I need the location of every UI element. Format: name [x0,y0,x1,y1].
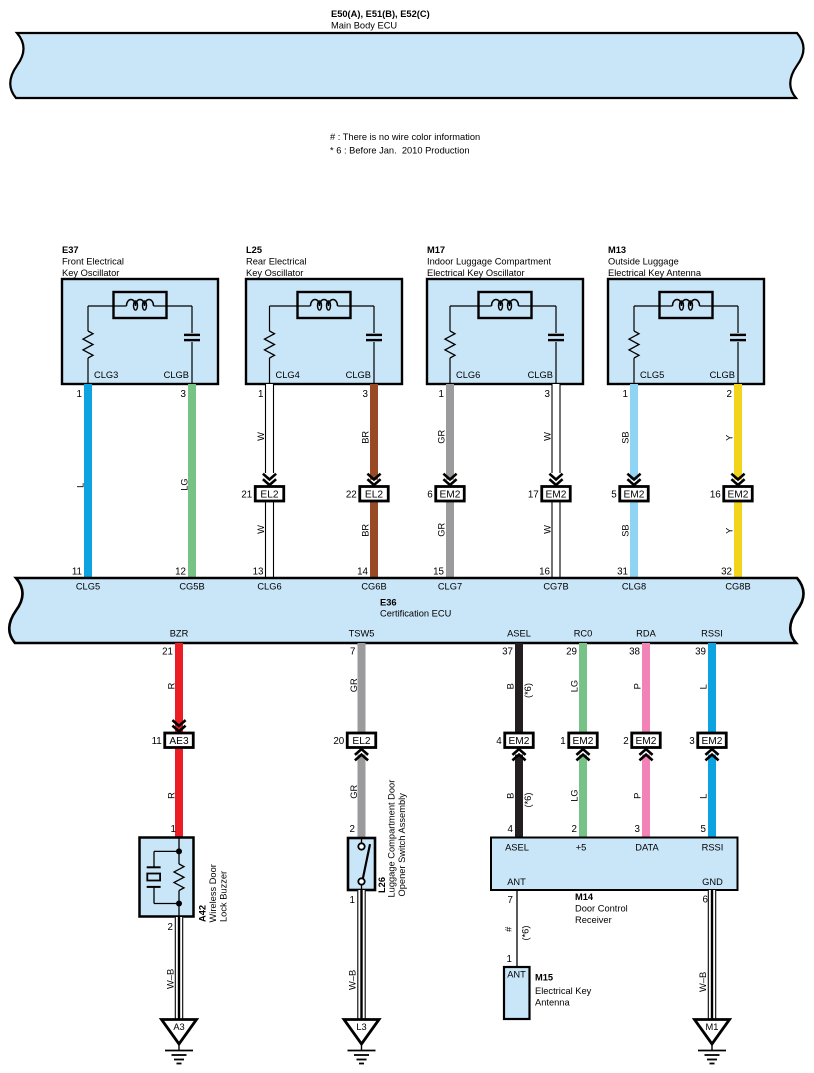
svg-text:6: 6 [703,895,709,906]
svg-text:RSSI: RSSI [701,629,723,639]
svg-text:W–B: W–B [348,970,358,990]
svg-text:LG: LG [180,478,190,490]
svg-text:CLG5: CLG5 [76,582,100,592]
svg-text:2: 2 [727,389,732,400]
svg-text:CLGB: CLGB [346,370,371,380]
svg-text:5: 5 [701,824,707,835]
svg-text:32: 32 [721,567,732,578]
svg-text:5: 5 [611,489,617,500]
svg-text:Electrical Key Antenna: Electrical Key Antenna [608,268,702,278]
svg-text:BZR: BZR [170,629,189,639]
svg-text:EL2: EL2 [260,489,278,500]
svg-text:39: 39 [695,647,706,658]
svg-text:#: # [504,926,514,932]
svg-text:P: P [633,793,643,799]
svg-text:Opener Switch Assembly: Opener Switch Assembly [397,793,407,897]
svg-text:Front Electrical: Front Electrical [62,257,124,267]
svg-text:Y: Y [725,528,735,534]
svg-text:CG6B: CG6B [361,582,386,592]
svg-text:EL2: EL2 [352,736,370,747]
svg-text:29: 29 [566,647,577,658]
svg-text:GR: GR [349,678,359,692]
svg-text:CLG6: CLG6 [456,370,480,380]
svg-text:L3: L3 [356,1022,366,1032]
svg-text:3: 3 [181,389,187,400]
svg-text:7: 7 [508,895,513,906]
svg-text:Antenna: Antenna [535,998,570,1008]
svg-text:DATA: DATA [635,843,659,853]
svg-text:31: 31 [617,567,628,578]
svg-text:1: 1 [350,895,355,906]
svg-text:W–B: W–B [698,972,708,992]
svg-text:Main Body ECU: Main Body ECU [331,21,397,31]
svg-text:W: W [256,432,266,441]
svg-text:(*6): (*6) [523,793,533,808]
svg-text:CG5B: CG5B [179,582,204,592]
svg-text:EM2: EM2 [440,489,461,500]
svg-text:EM2: EM2 [624,489,645,500]
svg-text:Electrical Key: Electrical Key [535,986,592,996]
svg-text:14: 14 [357,567,368,578]
svg-text:4: 4 [508,824,514,835]
svg-text:20: 20 [333,736,344,747]
svg-text:Y: Y [725,435,735,441]
svg-text:CLG8: CLG8 [622,582,646,592]
svg-text:ANT: ANT [507,970,526,980]
svg-text:RC0: RC0 [574,629,593,639]
svg-text:13: 13 [253,567,264,578]
svg-text:CLG5: CLG5 [640,370,664,380]
svg-text:L26: L26 [377,877,387,893]
svg-text:RDA: RDA [636,629,656,639]
svg-text:W: W [543,432,553,441]
svg-text:CLG4: CLG4 [276,370,300,380]
svg-text:CLGB: CLGB [528,370,553,380]
svg-text:M15: M15 [535,973,553,983]
svg-text:1: 1 [171,824,176,835]
svg-text:3: 3 [689,736,695,747]
svg-text:Luggage Compartment Door: Luggage Compartment Door [387,780,397,898]
svg-text:B: B [506,683,516,689]
svg-text:3: 3 [363,389,369,400]
svg-text:SB: SB [621,524,631,536]
svg-text:2: 2 [168,922,173,933]
svg-text:L: L [699,794,709,799]
svg-text:# : There is no wire color inf: # : There is no wire color information [330,132,480,142]
svg-text:Outside Luggage: Outside Luggage [608,257,679,267]
svg-text:A3: A3 [173,1022,184,1032]
svg-text:B: B [506,793,516,799]
svg-text:Lock Buzzer: Lock Buzzer [219,871,229,922]
svg-text:GND: GND [702,877,723,887]
svg-text:AE3: AE3 [169,736,189,747]
svg-text:A42: A42 [198,905,208,922]
svg-text:2: 2 [350,824,355,835]
svg-text:EM2: EM2 [636,736,657,747]
svg-text:RSSI: RSSI [702,843,724,853]
svg-text:12: 12 [175,567,186,578]
svg-text:CLG6: CLG6 [257,582,281,592]
svg-text:21: 21 [162,647,173,658]
svg-text:BR: BR [361,431,371,444]
svg-text:M14: M14 [575,892,594,902]
svg-text:W: W [256,525,266,534]
svg-text:Wireless Door: Wireless Door [208,864,218,922]
svg-text:LG: LG [570,789,580,801]
svg-text:Receiver: Receiver [575,915,612,925]
svg-text:21: 21 [241,489,252,500]
svg-text:CG8B: CG8B [725,582,750,592]
svg-text:1: 1 [439,389,444,400]
svg-text:LG: LG [570,680,580,692]
svg-text:Certification ECU: Certification ECU [380,609,451,619]
svg-text:3: 3 [635,824,641,835]
svg-text:CLG3: CLG3 [94,370,118,380]
svg-text:1: 1 [507,954,512,965]
svg-text:* 6 : Before Jan. 2010 Produc: * 6 : Before Jan. 2010 Production [330,146,470,156]
svg-text:1: 1 [77,389,82,400]
svg-text:L: L [699,684,709,689]
svg-text:11: 11 [72,567,82,578]
svg-text:6: 6 [427,489,433,500]
svg-text:EM2: EM2 [702,736,723,747]
svg-text:37: 37 [502,647,513,658]
svg-text:Rear Electrical: Rear Electrical [246,257,306,267]
svg-text:ASEL: ASEL [505,843,529,853]
svg-text:Key Oscillator: Key Oscillator [246,268,303,278]
svg-text:E50(A), E51(B), E52(C): E50(A), E51(B), E52(C) [331,9,430,19]
svg-text:1: 1 [560,736,565,747]
svg-text:17: 17 [528,489,539,500]
svg-text:EM2: EM2 [546,489,567,500]
svg-text:+5: +5 [576,843,587,853]
svg-text:E37: E37 [62,245,79,255]
svg-text:SB: SB [621,431,631,443]
svg-text:4: 4 [496,736,502,747]
svg-text:R: R [167,792,177,799]
svg-text:EL2: EL2 [365,489,383,500]
svg-text:W: W [543,525,553,534]
svg-text:16: 16 [539,567,550,578]
svg-text:11: 11 [152,736,162,747]
svg-text:GR: GR [349,785,359,799]
svg-text:CLG7: CLG7 [438,582,462,592]
svg-text:W–B: W–B [166,969,176,989]
svg-text:3: 3 [545,389,551,400]
svg-text:15: 15 [433,567,444,578]
svg-text:CG7B: CG7B [543,582,568,592]
svg-text:22: 22 [346,489,357,500]
svg-text:BR: BR [361,524,371,537]
svg-text:L: L [76,483,86,488]
svg-text:GR: GR [437,523,447,537]
svg-text:(*6): (*6) [523,683,533,698]
svg-text:7: 7 [350,647,355,658]
svg-text:EM2: EM2 [573,736,594,747]
svg-text:1: 1 [258,389,263,400]
svg-text:TSW5: TSW5 [349,629,375,639]
svg-text:M1: M1 [706,1022,719,1032]
svg-text:Door Control: Door Control [575,904,628,914]
svg-text:Electrical Key Oscillator: Electrical Key Oscillator [427,268,525,278]
svg-text:E36: E36 [380,598,397,608]
svg-text:GR: GR [437,430,447,444]
svg-text:CLGB: CLGB [164,370,189,380]
svg-text:38: 38 [629,647,640,658]
svg-text:2: 2 [572,824,577,835]
svg-text:16: 16 [710,489,721,500]
svg-text:1: 1 [623,389,628,400]
svg-text:Key Oscillator: Key Oscillator [62,268,119,278]
svg-text:M13: M13 [608,245,626,255]
svg-text:CLGB: CLGB [710,370,735,380]
svg-text:ASEL: ASEL [507,629,531,639]
svg-text:M17: M17 [427,245,445,255]
svg-text:R: R [167,682,177,689]
svg-text:(*6): (*6) [521,926,531,941]
svg-text:EM2: EM2 [728,489,749,500]
svg-text:Indoor Luggage Compartment: Indoor Luggage Compartment [427,257,551,267]
svg-text:P: P [633,683,643,689]
svg-text:EM2: EM2 [509,736,530,747]
svg-text:2: 2 [623,736,628,747]
svg-text:L25: L25 [246,245,262,255]
svg-text:ANT: ANT [507,877,526,887]
